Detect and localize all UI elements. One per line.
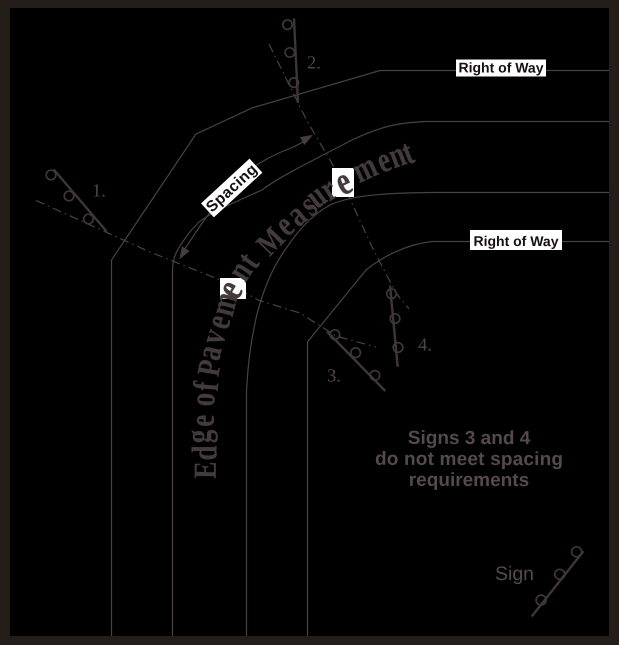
svg-text:e: e bbox=[182, 415, 222, 427]
svg-text:2.: 2. bbox=[307, 54, 321, 74]
svg-text:o: o bbox=[182, 391, 222, 407]
svg-text:Right of Way: Right of Way bbox=[473, 233, 558, 249]
svg-text:g: g bbox=[178, 430, 218, 444]
svg-text:Sign: Sign bbox=[495, 563, 534, 585]
svg-text:Right of Way: Right of Way bbox=[458, 59, 543, 75]
svg-text:1.: 1. bbox=[92, 182, 106, 202]
svg-text:E: E bbox=[188, 461, 224, 479]
svg-text:4.: 4. bbox=[418, 336, 432, 356]
svg-text:requirements: requirements bbox=[409, 470, 529, 491]
svg-text:do not meet spacing: do not meet spacing bbox=[375, 449, 563, 470]
svg-text:3.: 3. bbox=[327, 367, 341, 387]
svg-text:Signs 3 and 4: Signs 3 and 4 bbox=[408, 428, 531, 449]
svg-text:d: d bbox=[185, 445, 225, 460]
